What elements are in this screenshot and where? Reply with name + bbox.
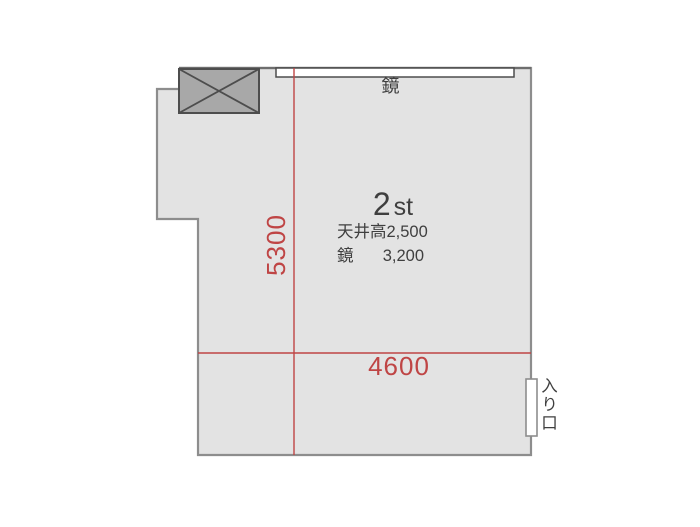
spec-label-ceiling: 天井高 (337, 220, 387, 244)
column-box (179, 69, 259, 113)
room-title-number: 2 (373, 188, 391, 220)
floor-plan: 鏡 2 st 天井高 2,500 鏡 3,200 5300 4600 入り口 (0, 0, 700, 527)
spec-row-mirror: 鏡 3,200 (337, 244, 424, 268)
spec-value-ceiling: 2,500 (387, 220, 428, 244)
mirror-label: 鏡 (382, 77, 401, 95)
dimension-depth-label: 5300 (263, 214, 289, 276)
spec-label-mirror: 鏡 (337, 244, 354, 268)
spec-value-mirror: 3,200 (383, 244, 424, 268)
room-title: 2 st (373, 188, 413, 220)
entrance-label: 入り口 (539, 377, 556, 433)
door-opening (526, 379, 537, 436)
spec-row-ceiling: 天井高 2,500 (337, 220, 424, 244)
dimension-width-label: 4600 (368, 353, 430, 379)
room-specs: 天井高 2,500 鏡 3,200 (337, 220, 424, 268)
room-title-suffix: st (394, 195, 413, 220)
